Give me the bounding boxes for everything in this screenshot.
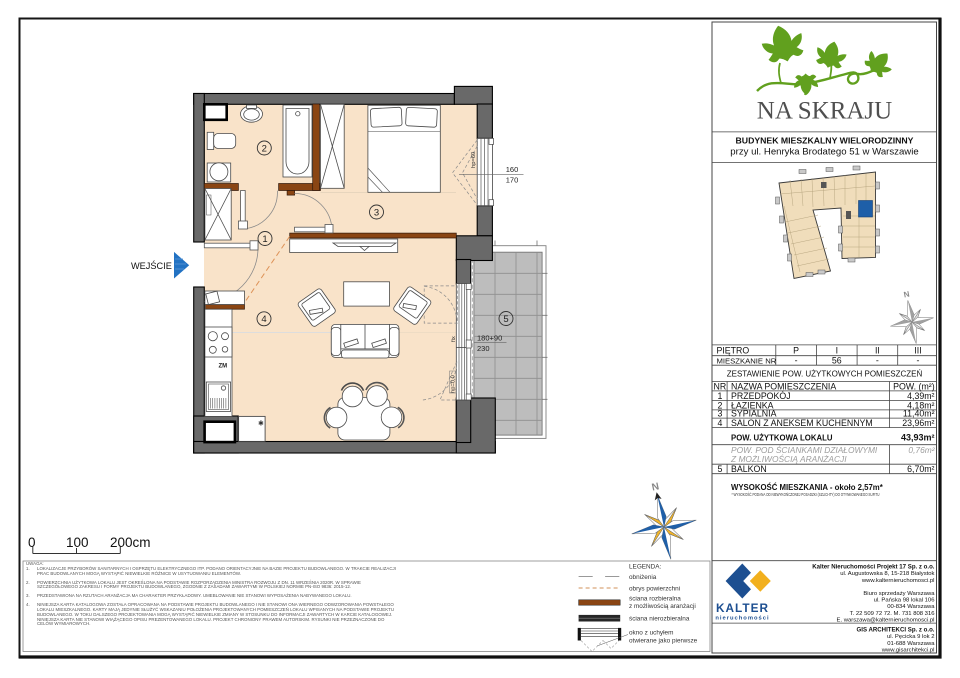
svg-text:2: 2 [262,143,267,154]
svg-text:GIS ARCHITEKCI Sp. z o.o.: GIS ARCHITEKCI Sp. z o.o. [857,627,935,634]
svg-text:6,70m²: 6,70m² [907,464,934,474]
svg-text:4: 4 [261,314,266,325]
svg-text:56: 56 [832,355,842,365]
svg-text:SALON Z ANEKSEM KUCHENNYM: SALON Z ANEKSEM KUCHENNYM [731,418,873,428]
svg-text:z możliwością aranżacji: z możliwością aranżacji [629,603,696,610]
svg-text:WEJŚCIE: WEJŚCIE [131,260,172,271]
svg-text:I: I [836,346,838,356]
svg-text:-: - [917,355,920,365]
svg-text:5: 5 [717,464,722,474]
svg-text:-: - [876,355,879,365]
svg-text:200cm: 200cm [110,535,151,550]
svg-text:obrys powierzchni: obrys powierzchni [629,585,680,592]
svg-text:POW. UŻYTKOWA LOKALU: POW. UŻYTKOWA LOKALU [731,434,833,443]
svg-text:ściana rozbieralna: ściana rozbieralna [629,596,681,603]
svg-text:23,96m²: 23,96m² [902,418,934,428]
svg-text:Kalter Nieruchomości Projekt 1: Kalter Nieruchomości Projekt 17 Sp. z o.… [812,564,935,571]
svg-text:BUDYNEK MIESZKALNY WIELORODZIN: BUDYNEK MIESZKALNY WIELORODZINNY [736,136,914,146]
svg-text:43,93m²: 43,93m² [901,433,935,443]
svg-text:170: 170 [506,176,519,185]
svg-text:ściana nierozbieralna: ściana nierozbieralna [629,615,690,622]
svg-text:ZM: ZM [219,364,228,370]
svg-text:4,39m²: 4,39m² [907,391,934,401]
svg-text:otwierane jako pierwsze: otwierane jako pierwsze [629,637,698,644]
svg-text:przy ul. Henryka Brodatego 51: przy ul. Henryka Brodatego 51 w Warszawi… [730,147,918,158]
svg-text:hp=60: hp=60 [471,152,477,168]
svg-text:100: 100 [66,535,89,550]
svg-text:PIĘTRO: PIĘTRO [717,346,750,356]
svg-text:* WYSOKOŚĆ PODANA OD NIEWYKOŃC: * WYSOKOŚĆ PODANA OD NIEWYKOŃCZONEJ POSA… [732,492,880,497]
svg-text:3: 3 [717,409,722,419]
svg-text:POW. (m²): POW. (m²) [893,381,935,391]
svg-text:nieruchomości: nieruchomości [715,616,769,622]
svg-text:fix: fix [451,336,457,342]
svg-text:PRZEDPOKÓJ: PRZEDPOKÓJ [731,391,791,401]
svg-text:ul. Pańska 98 lokal 106: ul. Pańska 98 lokal 106 [874,598,936,604]
svg-text:0: 0 [28,535,36,550]
svg-text:4: 4 [717,418,722,428]
svg-text:NR: NR [714,381,727,391]
svg-text:00-834 Warszawa: 00-834 Warszawa [887,604,935,610]
svg-text:0,76m²: 0,76m² [908,445,935,455]
svg-text:SYPIALNIA: SYPIALNIA [731,409,777,419]
svg-text:180+90: 180+90 [477,334,502,343]
svg-text:ZESTAWIENIE POW. UŻYTKOWYCH PO: ZESTAWIENIE POW. UŻYTKOWYCH POMIESZCZEŃ [727,370,923,379]
svg-text:WYSOKOŚĆ MIESZKANIA - około 2,: WYSOKOŚĆ MIESZKANIA - około 2,57m* [731,483,884,492]
svg-text:1: 1 [717,391,722,401]
svg-text:www.gisarchitekci.pl: www.gisarchitekci.pl [881,647,935,653]
svg-text:-: - [795,355,798,365]
svg-text:II: II [875,346,880,356]
svg-text:1: 1 [262,234,267,245]
svg-text:MIESZKANIE NR: MIESZKANIE NR [717,356,777,365]
svg-text:BALKON: BALKON [731,464,767,474]
svg-text:11,40m²: 11,40m² [903,409,935,419]
svg-text:P: P [793,346,799,356]
svg-text:T. 22 509 72 72. M. 731 808 31: T. 22 509 72 72. M. 731 808 316 [850,611,936,617]
svg-text:NAZWA POMIESZCZENIA: NAZWA POMIESZCZENIA [731,381,836,391]
svg-text:ul. Pęcicka 9 lok 2: ul. Pęcicka 9 lok 2 [887,634,934,640]
svg-text:NA SKRAJU: NA SKRAJU [757,98,892,125]
svg-text:hp=0,0: hp=0,0 [451,375,457,393]
svg-text:okno z uchyłem: okno z uchyłem [629,629,673,636]
svg-text:KALTER: KALTER [716,601,769,615]
svg-text:LEGENDA:: LEGENDA: [629,564,662,571]
svg-text:III: III [914,346,921,356]
svg-text:Biuro sprzedaży Warszawa: Biuro sprzedaży Warszawa [863,591,935,597]
svg-text:E. warszawa@kalternieruchomosc: E. warszawa@kalternieruchomosci.pl [837,617,935,623]
svg-text:160: 160 [506,165,519,174]
svg-text:Z MOŻLIWOŚCIĄ ARANŻACJI: Z MOŻLIWOŚCIĄ ARANŻACJI [730,453,847,464]
svg-text:5: 5 [503,314,508,325]
svg-text:01-688 Warszawa: 01-688 Warszawa [887,641,935,647]
svg-text:230: 230 [477,344,490,353]
svg-text:3: 3 [374,207,379,218]
svg-text:www.kalternieruchomosci.pl: www.kalternieruchomosci.pl [861,578,935,584]
svg-text:N: N [651,481,660,493]
svg-text:ul. Augustowska 8, 15-218 Biał: ul. Augustowska 8, 15-218 Białystok [840,571,934,577]
svg-text:✱: ✱ [258,420,264,428]
svg-text:obniżenia: obniżenia [629,574,657,581]
